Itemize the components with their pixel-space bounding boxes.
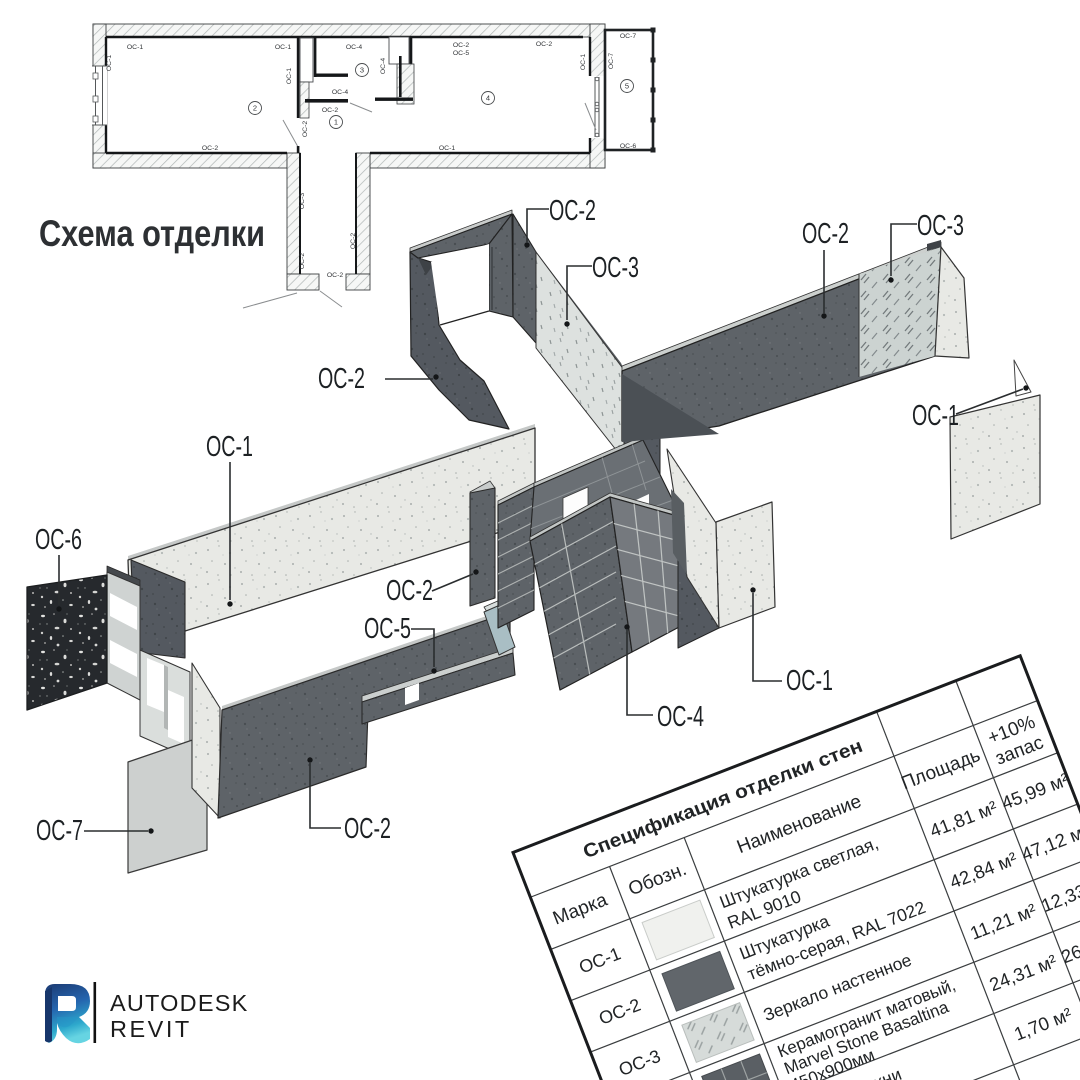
svg-text:5: 5	[625, 82, 629, 91]
svg-text:ОС-4: ОС-4	[332, 89, 348, 96]
svg-text:ОС-2: ОС-2	[350, 233, 357, 249]
svg-text:ОС-1: ОС-1	[439, 145, 455, 152]
svg-text:ОС-2: ОС-2	[386, 575, 433, 607]
svg-text:ОС-2: ОС-2	[327, 272, 343, 279]
svg-text:ОС-2: ОС-2	[318, 363, 365, 395]
svg-text:ОС-4: ОС-4	[380, 58, 387, 74]
svg-text:ОС-1: ОС-1	[275, 44, 291, 51]
svg-text:ОС-1: ОС-1	[106, 55, 113, 71]
svg-text:ОС-4: ОС-4	[346, 44, 362, 51]
svg-text:ОС-1: ОС-1	[206, 431, 253, 463]
svg-text:ОС-4: ОС-4	[657, 701, 704, 733]
svg-text:Схема отделки: Схема отделки	[39, 213, 265, 254]
svg-text:ОС-6: ОС-6	[35, 524, 82, 556]
svg-text:ОС-7: ОС-7	[608, 53, 615, 69]
svg-text:ОС-5: ОС-5	[364, 613, 411, 645]
svg-text:ОС-1: ОС-1	[127, 44, 143, 51]
svg-text:ОС-1: ОС-1	[912, 400, 959, 432]
svg-text:ОС-5: ОС-5	[453, 50, 469, 57]
svg-text:ОС-7: ОС-7	[36, 815, 83, 847]
svg-text:ОС-6: ОС-6	[620, 143, 636, 150]
svg-text:ОС-1: ОС-1	[786, 665, 833, 697]
svg-text:ОС-2: ОС-2	[302, 121, 309, 137]
svg-text:4: 4	[486, 94, 490, 103]
svg-text:REVIT: REVIT	[110, 1016, 192, 1042]
svg-text:1: 1	[334, 118, 338, 127]
svg-text:ОС-2: ОС-2	[453, 42, 469, 49]
svg-text:2: 2	[253, 104, 257, 113]
svg-text:ОС-2: ОС-2	[299, 253, 306, 269]
svg-text:ОС-3: ОС-3	[917, 210, 964, 242]
svg-text:AUTODESK: AUTODESK	[110, 990, 248, 1016]
svg-text:ОС-3: ОС-3	[592, 252, 639, 284]
svg-text:ОС-2: ОС-2	[202, 145, 218, 152]
svg-text:ОС-2: ОС-2	[802, 218, 849, 250]
svg-text:ОС-2: ОС-2	[536, 41, 552, 48]
svg-text:ОС-2: ОС-2	[549, 195, 596, 227]
svg-text:ОС-2: ОС-2	[344, 813, 391, 845]
svg-text:3: 3	[360, 66, 364, 75]
svg-text:ОС-1: ОС-1	[286, 68, 293, 84]
svg-text:ОС-1: ОС-1	[580, 54, 587, 70]
svg-text:ОС-3: ОС-3	[299, 193, 306, 209]
svg-text:ОС-2: ОС-2	[322, 107, 338, 114]
svg-text:ОС-7: ОС-7	[620, 33, 636, 40]
